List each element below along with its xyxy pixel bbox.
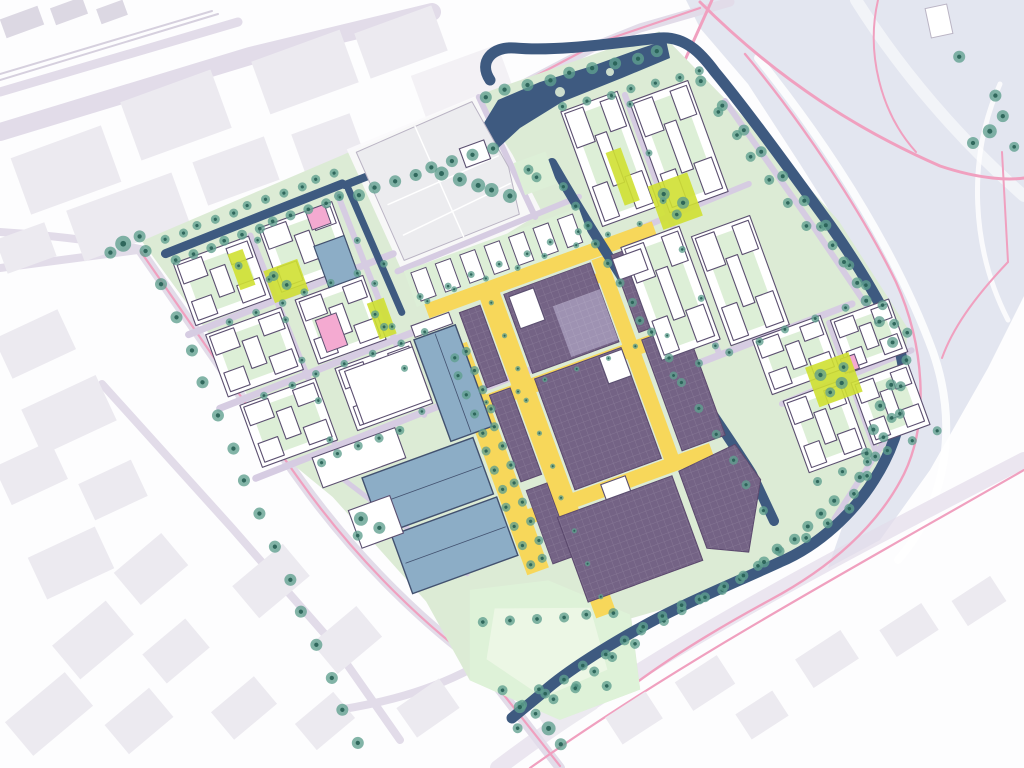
tree-core-icon — [543, 692, 547, 696]
masterplan-map — [0, 0, 1024, 768]
tree-core-icon — [722, 585, 726, 589]
tree-core-icon — [655, 49, 659, 53]
tree-core-icon — [742, 128, 746, 132]
tree-core-icon — [562, 678, 566, 682]
tree-core-icon — [518, 705, 522, 709]
tree-core-icon — [623, 639, 627, 643]
lake-island-2 — [606, 68, 614, 76]
tree-core-icon — [548, 78, 552, 82]
tree-core-icon — [502, 88, 506, 92]
tree-core-icon — [824, 223, 828, 227]
tree-core-icon — [891, 340, 895, 344]
tree-core-icon — [559, 742, 563, 746]
tree-core-icon — [864, 299, 868, 303]
tree-core-icon — [120, 241, 126, 247]
tree-core-icon — [1001, 114, 1005, 118]
tree-core-icon — [762, 560, 766, 564]
tree-core-icon — [971, 141, 975, 145]
tree-core-icon — [590, 66, 594, 70]
tree-core-icon — [781, 174, 785, 178]
tree-core-icon — [525, 83, 529, 87]
tree-core-icon — [957, 55, 961, 59]
tree-core-icon — [802, 199, 806, 203]
tree-core-icon — [661, 614, 665, 618]
tree-core-icon — [604, 653, 608, 657]
tree-core-icon — [865, 451, 869, 455]
tree-core-icon — [759, 150, 763, 154]
tree-core-icon — [742, 574, 746, 578]
tree-core-icon — [993, 93, 997, 97]
tree-core-icon — [889, 383, 893, 387]
tree-core-icon — [720, 104, 724, 108]
tree-core-icon — [108, 250, 112, 254]
tree-core-icon — [806, 524, 810, 528]
tree-core-icon — [842, 260, 846, 264]
tree-core-icon — [793, 537, 797, 541]
tree-core-icon — [871, 428, 875, 432]
tree-core-icon — [858, 475, 862, 479]
tree-core-icon — [819, 512, 823, 516]
tree-core-icon — [680, 603, 684, 607]
tree-core-icon — [699, 79, 703, 83]
tree-core-icon — [567, 71, 571, 75]
tree-core-icon — [987, 129, 992, 134]
tree-core-icon — [775, 547, 779, 551]
tree-core-icon — [878, 404, 882, 408]
lake-island — [555, 87, 565, 97]
tree-core-icon — [137, 234, 141, 238]
tree-core-icon — [877, 320, 881, 324]
tree-core-icon — [546, 726, 551, 731]
tree-core-icon — [641, 625, 645, 629]
tree-core-icon — [636, 57, 640, 61]
tree-core-icon — [855, 281, 859, 285]
map-canvas — [0, 0, 1024, 768]
tree-core-icon — [581, 664, 585, 668]
tree-core-icon — [832, 499, 836, 503]
tree-core-icon — [484, 95, 488, 99]
tree-core-icon — [703, 595, 707, 599]
tree-core-icon — [1012, 145, 1016, 149]
tree-core-icon — [613, 61, 617, 65]
